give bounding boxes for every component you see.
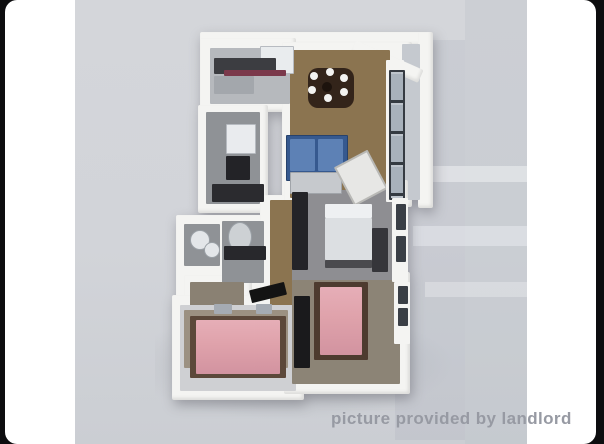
round-sink-small xyxy=(204,242,220,258)
white-bed-footboard xyxy=(325,260,372,268)
sofa-cushion xyxy=(290,139,315,171)
balcony-window-glass xyxy=(389,70,405,200)
white-bed-mattress xyxy=(325,218,372,260)
toilet-dark xyxy=(226,156,250,180)
bedroom-bl-door-gap xyxy=(214,304,232,314)
dinner-plate xyxy=(340,88,348,96)
bedroom-bl-door-gap xyxy=(256,304,272,314)
pink-bed-mattress-vertical xyxy=(320,287,362,355)
reflection-band-horizontal-1 xyxy=(427,166,527,182)
bedroom-middle-window-frame xyxy=(396,204,406,230)
bathroom-doorway-floor xyxy=(212,184,264,202)
balcony-outer-wall xyxy=(418,32,433,208)
dinner-plate xyxy=(340,74,348,82)
bedroom-br-window-frame xyxy=(398,286,408,304)
bathroom-sink xyxy=(226,124,256,154)
bathroom-vanity-dark xyxy=(224,246,266,260)
bedroom-middle-window-frame xyxy=(396,236,406,262)
bedroom-br-closet-dark xyxy=(294,296,310,368)
bedroom-middle-dresser-dark xyxy=(372,228,388,272)
kitchen-lower-cabinet xyxy=(214,76,254,94)
watermark-text: picture provided by landlord xyxy=(331,409,604,429)
reflection-band-horizontal-3 xyxy=(425,282,527,297)
dinner-plate xyxy=(310,72,318,80)
pink-bed-mattress-horizontal xyxy=(196,320,280,374)
content-card: picture provided by landlord xyxy=(5,0,596,444)
coffee-table xyxy=(290,172,342,194)
dinner-plate xyxy=(308,86,316,94)
dinner-plate xyxy=(326,68,334,76)
reflection-band-vertical-2 xyxy=(465,0,527,444)
white-bed-pillows xyxy=(325,204,372,218)
table-centerpiece xyxy=(322,82,332,92)
floorplan-3d-render xyxy=(172,32,433,398)
dinner-plate xyxy=(324,94,332,102)
bedroom-middle-closet-dark xyxy=(292,192,308,270)
listing-photo: picture provided by landlord xyxy=(75,0,527,444)
bedroom-br-window-frame xyxy=(398,308,408,326)
